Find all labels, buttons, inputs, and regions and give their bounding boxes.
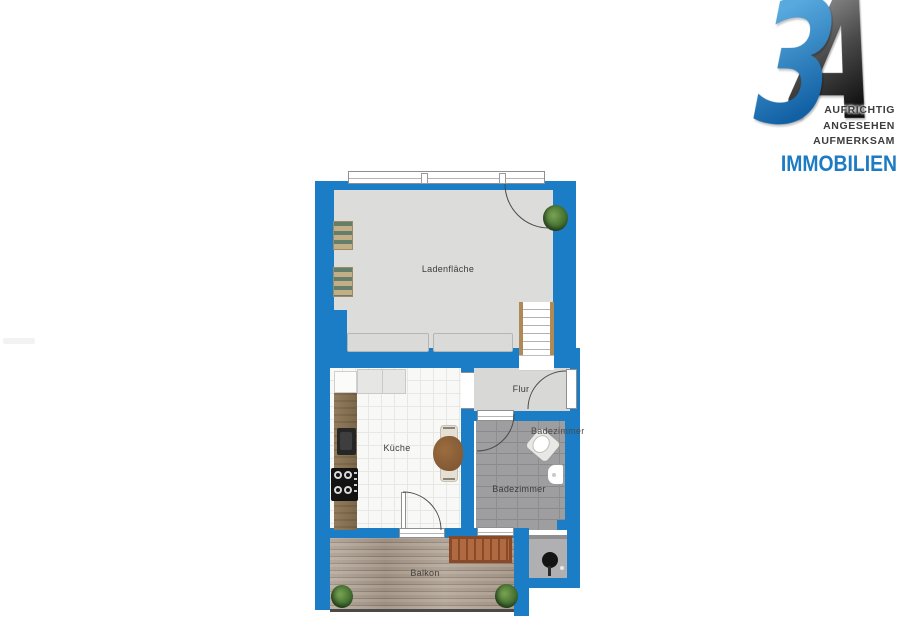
laden-left-wall-step [334,310,347,348]
label-flur: Flur [513,384,530,394]
sales-counter [347,333,429,352]
chair-back [443,478,455,480]
tagline-line-2: ANGESEHEN [813,119,895,135]
kueche-flur-opening [461,372,474,409]
fridge [334,371,357,393]
shower-icon [529,535,567,578]
bad-corner-notch [557,520,567,530]
chair-back [443,427,455,429]
cabinet-divider [382,370,383,393]
tagline-line-3: AUFMERKSAM [813,134,895,150]
label-badezimmer-secondary: Badezimmer [531,426,585,436]
sales-counter [433,333,513,352]
edge-watermark [3,338,35,344]
doorway-line [400,533,444,534]
basin-drain [552,473,556,477]
logo: A 3 AUFRICHTIG ANGESEHEN AUFMERKSAM IMMO… [768,8,898,178]
window-mullion [499,173,506,184]
plant-icon [543,205,568,231]
logo-brand: IMMOBILIEN [781,151,897,177]
kueche-door-leaf [401,492,406,529]
stove-knobs [354,472,357,496]
plant-icon [495,584,518,608]
stair-treads [523,302,550,355]
label-balkon: Balkon [410,568,439,578]
storefront-window [348,171,545,184]
display-shelf-icon [333,267,353,297]
burner [334,486,342,494]
sink-basin [340,432,352,450]
label-ladenflaeche: Ladenfläche [422,264,474,274]
label-badezimmer: Badezimmer [492,484,546,494]
stair-landing-line [519,355,554,356]
stove-icon [331,468,358,501]
kitchen-sink-icon [337,428,356,455]
balkon-edge [330,609,514,612]
floor-plan: Ladenfläche Flur Küche Badezimmer Badezi… [315,170,580,616]
display-shelf-icon [333,221,353,250]
shower-drain [560,566,564,570]
plant-icon [331,585,353,608]
kitchen-counter [334,393,357,530]
doorway-line [478,416,513,417]
window-mullion [421,173,428,184]
kitchen-cabinets [357,369,406,394]
bad-balkon-window [477,527,514,536]
flur-entrance-door [566,369,577,409]
burner [334,471,342,479]
dining-table-icon [433,436,463,471]
burner [344,471,352,479]
flur-bad-doorway [477,410,514,421]
label-kueche: Küche [383,443,410,453]
washbasin-icon [547,464,564,485]
shower-bottom-wall [529,578,580,588]
balcony-table-icon [449,536,512,563]
tagline-line-1: AUFRICHTIG [813,103,895,119]
window-line [478,532,513,533]
staircase [519,302,554,371]
kueche-balkon-door-threshold [399,528,445,538]
balkon-right-wall [514,530,529,616]
window-glass-line [349,178,544,179]
stair-stringer [550,302,554,355]
burner [344,486,352,494]
logo-tagline: AUFRICHTIG ANGESEHEN AUFMERKSAM [813,103,895,150]
shower-arm [548,566,551,576]
left-wall-lower [315,368,330,610]
